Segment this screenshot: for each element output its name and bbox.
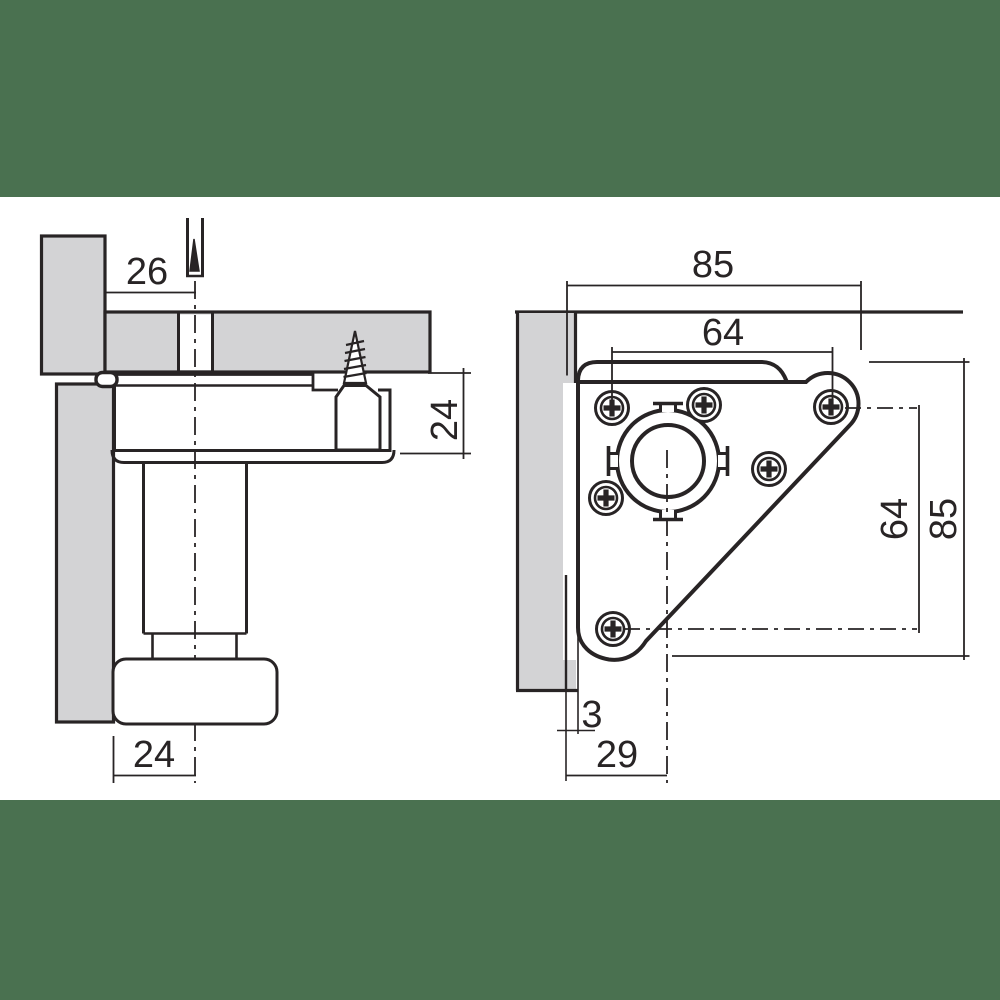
dimension-label-64-vertical: 64 <box>874 498 916 540</box>
worktop-board <box>105 312 430 372</box>
dimension-label-29: 29 <box>596 734 638 776</box>
dimension-label-26: 26 <box>126 251 168 293</box>
hub-bore <box>632 425 704 497</box>
bottom-green-band <box>0 800 1000 1000</box>
screw-top-middle <box>688 389 721 422</box>
screw-mid-left <box>590 482 623 515</box>
top-green-band <box>0 0 1000 197</box>
drawing-page: 26 24 24 <box>0 0 1000 1000</box>
screw-boss <box>336 386 380 451</box>
lower-side-panel <box>57 384 114 722</box>
screw-top-right <box>815 391 848 424</box>
dimension-label-64-horizontal: 64 <box>702 312 744 354</box>
adjustable-foot <box>113 659 277 724</box>
dimension-label-24-plate: 24 <box>424 399 466 441</box>
screw-mid-right <box>753 453 786 486</box>
flange-hook-tip <box>96 373 117 387</box>
dimension-label-85-depth: 85 <box>923 498 965 540</box>
upper-side-panel <box>42 236 106 374</box>
dimension-label-85-width: 85 <box>692 244 734 286</box>
technical-drawing: 26 24 24 <box>0 0 1000 1000</box>
dimension-label-3: 3 <box>581 694 602 736</box>
dimension-label-24-foot: 24 <box>133 734 175 776</box>
